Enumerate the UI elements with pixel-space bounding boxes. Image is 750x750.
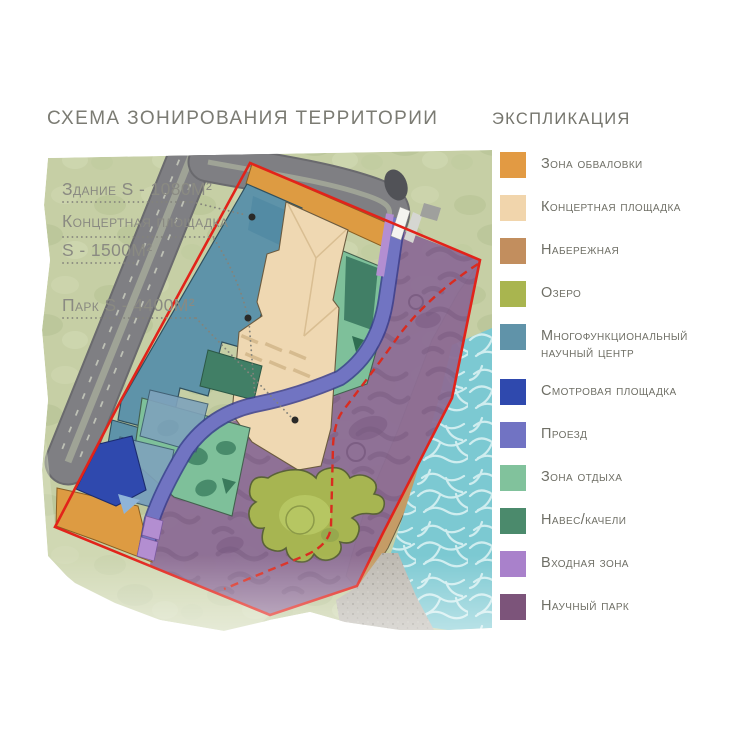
legend-swatch [500,465,526,491]
legend-swatch [500,195,526,221]
legend-swatch [500,238,526,264]
legend-swatch [500,152,526,178]
legend: ЭКСПЛИКАЦИЯ Зона обваловки Концертная пл… [492,110,728,637]
legend-item-label: Зона обваловки [541,152,643,173]
legend-item-label: Концертная площадка [541,195,681,216]
legend-item-label: Зона отдыха [541,465,622,486]
legend-item-label: Многофункциональный научный центр [541,324,728,362]
legend-item-label: Навес/качели [541,508,626,529]
annotation-concert: Концертная площадка S - 1500М² [62,213,228,259]
legend-item-label: Озеро [541,281,581,302]
legend-item: Зона обваловки [500,152,728,178]
legend-swatch [500,281,526,307]
annotation-park: Парк S - 4400М² [62,297,195,315]
legend-list: Зона обваловки Концертная площадка Набер… [500,152,728,620]
legend-item: Озеро [500,281,728,307]
zone-canopy-right [344,256,378,330]
legend-item: Многофункциональный научный центр [500,324,728,362]
legend-swatch [500,379,526,405]
legend-item: Входная зона [500,551,728,577]
legend-item-label: Проезд [541,422,587,443]
legend-item: Навес/качели [500,508,728,534]
legend-item: Смотровая площадка [500,379,728,405]
legend-item: Проезд [500,422,728,448]
legend-swatch [500,422,526,448]
legend-swatch [500,551,526,577]
legend-swatch [500,594,526,620]
page: СХЕМА ЗОНИРОВАНИЯ ТЕРРИТОРИИ Здание S - … [0,0,750,750]
legend-item: Набережная [500,238,728,264]
legend-item-label: Входная зона [541,551,629,572]
legend-item: Зона отдыха [500,465,728,491]
legend-item-label: Набережная [541,238,619,259]
page-title: СХЕМА ЗОНИРОВАНИЯ ТЕРРИТОРИИ [47,108,438,130]
legend-item: Концертная площадка [500,195,728,221]
legend-swatch [500,508,526,534]
legend-swatch [500,324,526,350]
legend-title: ЭКСПЛИКАЦИЯ [492,110,728,129]
annotation-concert-line2: S - 1500М² [62,242,228,260]
legend-item: Научный парк [500,594,728,620]
legend-item-label: Научный парк [541,594,629,615]
legend-item-label: Смотровая площадка [541,379,677,400]
annotation-concert-line1: Концертная площадка [62,211,228,231]
annotation-building: Здание S - 1080М² [62,181,212,199]
